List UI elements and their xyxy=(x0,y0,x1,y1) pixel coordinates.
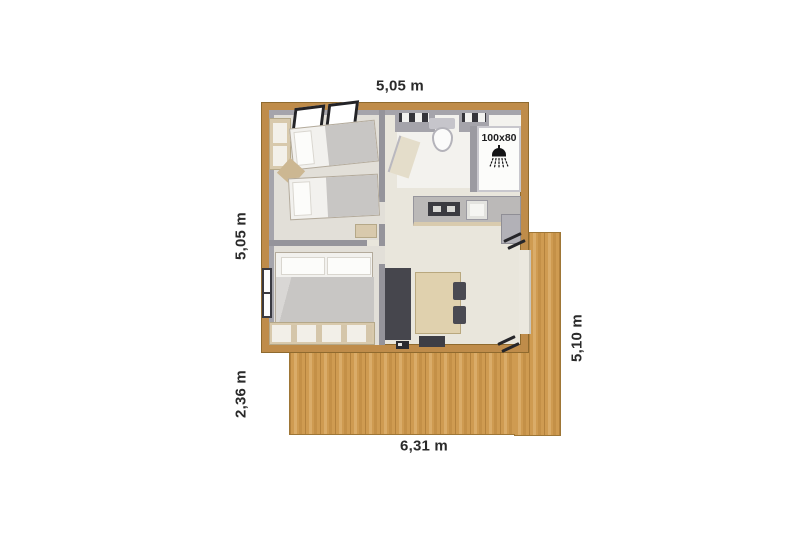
threshold-step xyxy=(396,341,409,349)
shower-size-label: 100x80 xyxy=(481,132,516,144)
dining-bench xyxy=(419,336,445,347)
dimension-label-left-upper: 5,05 m xyxy=(233,212,250,260)
shelf-bedroom-1 xyxy=(355,224,377,238)
shower-icon xyxy=(489,145,509,176)
bedrooms-right-wall-upper xyxy=(379,110,385,202)
bedrooms-right-wall-mid xyxy=(379,224,385,246)
shower-cabin: 100x80 xyxy=(477,126,521,192)
bed-blanket xyxy=(326,175,379,218)
single-bed-1 xyxy=(289,120,379,171)
bedroom-divider-wall xyxy=(269,240,367,246)
stove-burner xyxy=(447,206,455,212)
single-bed-2 xyxy=(288,174,380,221)
dining-chair xyxy=(453,282,466,300)
bed-pillow xyxy=(281,257,325,275)
bed-blanket xyxy=(276,277,374,323)
shower-side-wall xyxy=(470,126,477,192)
bed-pillow xyxy=(293,130,314,166)
dimension-label-top: 5,05 m xyxy=(376,78,424,95)
dimension-label-left-lower: 2,36 m xyxy=(233,370,250,418)
bathroom-window-icon xyxy=(399,113,429,122)
dimension-label-right: 5,10 m xyxy=(569,314,586,362)
bed-blanket xyxy=(325,121,378,166)
bed-pillow xyxy=(292,181,312,216)
house-outline: 100x80 xyxy=(262,103,528,352)
closet-row-bedroom-2 xyxy=(269,322,375,345)
tv-cabinet xyxy=(385,268,411,340)
door-hinge-icon xyxy=(503,233,529,251)
bed-pillow xyxy=(327,257,371,275)
stove-burner xyxy=(433,206,441,212)
dimension-label-bottom: 6,31 m xyxy=(400,438,448,455)
stove-icon xyxy=(428,202,460,216)
double-bed xyxy=(275,252,373,322)
terrace-glass-door xyxy=(519,250,531,334)
closet-doors xyxy=(272,325,372,342)
bathroom-window-2-icon xyxy=(462,113,486,122)
door-hinge-icon xyxy=(497,336,523,354)
sink-icon xyxy=(466,200,488,220)
bedroom-2-window-icon xyxy=(262,268,272,318)
floorplan-canvas: 100x80 xyxy=(0,0,800,533)
deck-bottom xyxy=(289,350,515,435)
dining-chair xyxy=(453,306,466,324)
